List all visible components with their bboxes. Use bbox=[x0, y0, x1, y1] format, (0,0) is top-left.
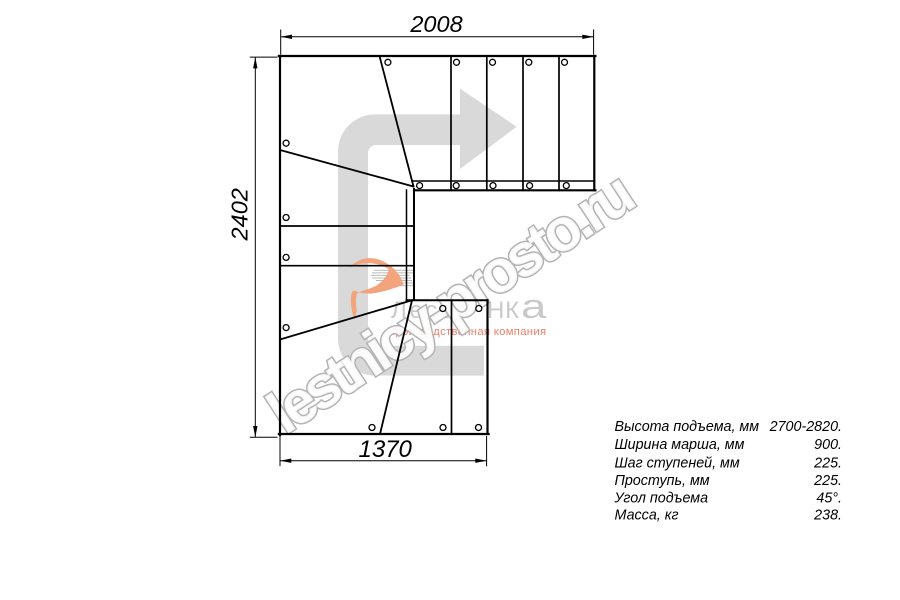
svg-text:225.: 225. bbox=[813, 473, 842, 489]
svg-text:Проступь, мм: Проступь, мм bbox=[615, 473, 710, 489]
svg-text:Ширина марша, мм: Ширина марша, мм bbox=[615, 437, 745, 453]
svg-text:45°.: 45°. bbox=[816, 490, 842, 506]
svg-text:Шаг ступеней, мм: Шаг ступеней, мм bbox=[615, 455, 740, 471]
svg-text:2008: 2008 bbox=[409, 11, 462, 37]
svg-text:1370: 1370 bbox=[359, 436, 413, 463]
svg-text:238.: 238. bbox=[813, 508, 842, 524]
svg-text:Угол подъема: Угол подъема bbox=[614, 490, 709, 506]
svg-text:2700-2820.: 2700-2820. bbox=[769, 419, 842, 435]
svg-text:Масса, кг: Масса, кг bbox=[615, 508, 679, 524]
svg-text:Высота подъема, мм: Высота подъема, мм bbox=[615, 419, 760, 435]
svg-text:900.: 900. bbox=[814, 437, 842, 453]
svg-text:225.: 225. bbox=[813, 455, 842, 471]
svg-text:2402: 2402 bbox=[227, 188, 253, 241]
